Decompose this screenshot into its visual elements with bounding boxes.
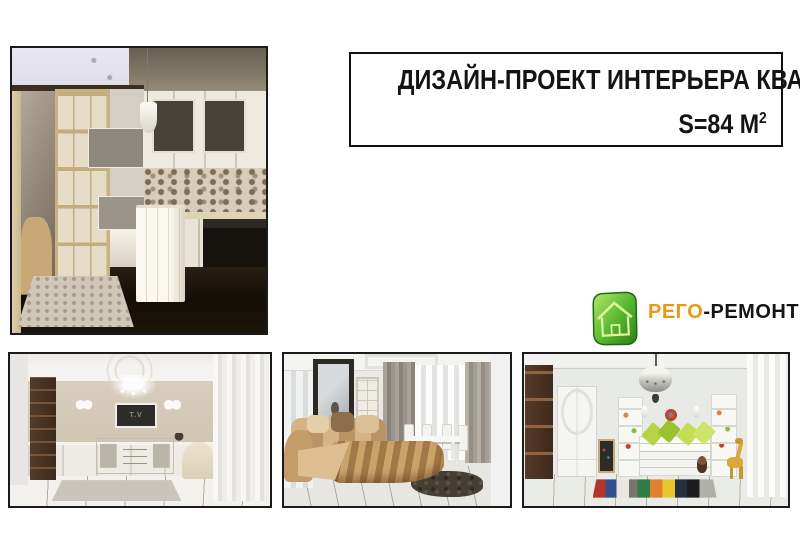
sofa-pillow [331, 412, 354, 432]
title-box: ДИЗАЙН-ПРОЕКТ ИНТЕРЬЕРА КВАРТИРЫ S=84 М2 [349, 52, 783, 147]
oven [203, 219, 267, 267]
hall-mirror [21, 89, 55, 294]
armchair [182, 442, 216, 478]
brand-logo: РЕГО-РЕМОНТ [591, 289, 791, 349]
giraffe-toy-leg [739, 466, 742, 478]
right-wall [491, 354, 510, 506]
sheer-curtains [213, 354, 270, 501]
red-wall-plate [665, 409, 677, 421]
table-leg [451, 442, 454, 459]
gray-rug [52, 480, 182, 501]
vase-flowers [174, 433, 184, 444]
chalkboard [598, 439, 615, 472]
door-frame-left [12, 48, 21, 333]
wall-sconce [641, 406, 648, 418]
pendant-lamp [140, 102, 157, 133]
pendant-cord [147, 48, 148, 105]
area-value: S=84 М [679, 109, 760, 139]
photo-kitchen-hallway [10, 46, 268, 335]
sofa-pillow [356, 415, 379, 433]
dark-shelving-unit [30, 377, 56, 480]
sofa-pillow [307, 415, 330, 433]
apartment-area: S=84 М2 [351, 99, 781, 144]
glass-cabinet-door [152, 99, 195, 153]
teddy-toy [697, 456, 708, 473]
kitchen-ceiling [129, 48, 266, 91]
wall-sconce [693, 406, 700, 418]
giraffe-toy-body [727, 457, 743, 468]
striped-colorful-rug [593, 479, 717, 497]
wall-sconce [75, 398, 93, 413]
chandelier-finial [652, 394, 659, 403]
brand-name-rest: -РЕМОНТ [703, 301, 799, 323]
hall-ceiling-spotlights [12, 48, 144, 89]
brand-name: РЕГО-РЕМОНТ [648, 301, 799, 324]
gray-curtain [465, 362, 492, 464]
brand-name-accent: РЕГО [648, 301, 703, 323]
slide-title: ДИЗАЙН-ПРОЕКТ ИНТЕРЬЕРА КВАРТИРЫ [351, 61, 781, 99]
chandelier [111, 375, 155, 398]
ornate-floor-rug [17, 276, 134, 327]
glass-sliding-door [55, 89, 110, 283]
photo-kids-room [522, 352, 790, 508]
wall-sconce [163, 398, 181, 413]
house-icon [591, 290, 639, 348]
white-cabinet-unit [136, 205, 184, 302]
dark-brown-door [525, 365, 553, 479]
photo-living-room-sofa [282, 352, 512, 508]
wardrobe-oval-mirror [561, 389, 593, 435]
slide-title-text: ДИЗАЙН-ПРОЕКТ ИНТЕРЬЕРА КВАРТИРЫ [398, 61, 800, 99]
tv-screen: T.V [115, 403, 157, 429]
chandelier-dome [639, 366, 672, 392]
glass-cabinet-door [203, 99, 246, 153]
area-superscript: 2 [759, 110, 767, 127]
tv-screen-label: T.V [130, 412, 143, 419]
photo-living-room-tv: T.V [8, 352, 272, 508]
wall-picture [88, 128, 144, 168]
striped-chaise [331, 441, 444, 484]
presentation-slide: ДИЗАЙН-ПРОЕКТ ИНТЕРЬЕРА КВАРТИРЫ S=84 М2 [0, 0, 800, 533]
left-wall [10, 354, 28, 485]
giraffe-toy-leg [730, 466, 733, 478]
sheer-curtains [747, 354, 788, 497]
white-sideboard [96, 438, 174, 474]
